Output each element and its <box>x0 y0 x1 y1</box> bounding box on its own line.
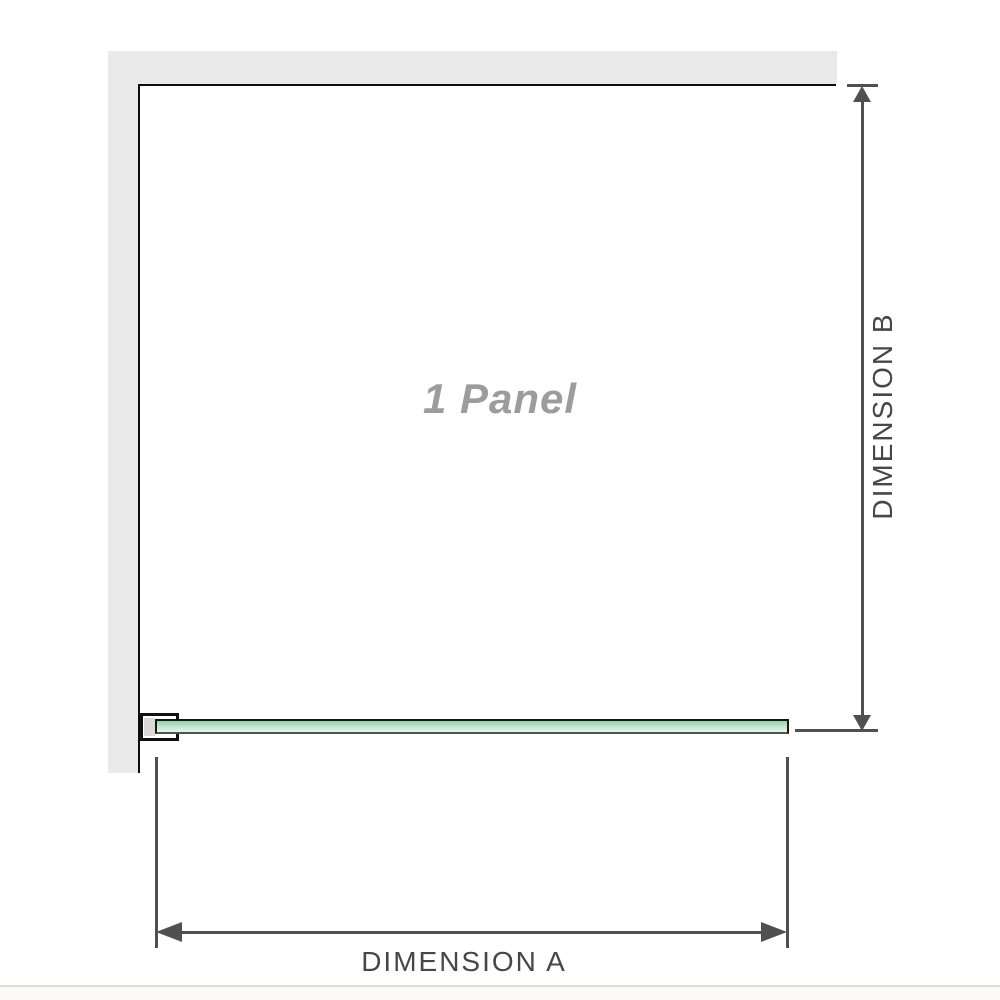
arrow-down-icon <box>853 715 871 731</box>
diagram-canvas: 1 Panel DIMENSION B DIMENSION A <box>0 0 1000 1000</box>
wall-top-segment <box>108 51 837 84</box>
wall-bracket-block <box>144 718 155 736</box>
dimension-a-line <box>178 931 766 934</box>
dimension-a-label: DIMENSION A <box>361 946 567 978</box>
panel-outline <box>138 84 836 773</box>
arrow-right-icon <box>761 922 787 942</box>
panel-label: 1 Panel <box>423 375 577 423</box>
wall-left-segment <box>108 51 138 773</box>
arrow-up-icon <box>853 86 871 102</box>
dimension-a-ext-left <box>155 757 158 948</box>
arrow-left-icon <box>156 922 182 942</box>
dimension-b-line <box>861 100 864 717</box>
page-bottom-margin <box>0 987 1000 1000</box>
dimension-b-label: DIMENSION B <box>867 312 899 519</box>
dimension-a-ext-right <box>786 757 789 948</box>
glass-panel-top-view <box>155 719 789 734</box>
